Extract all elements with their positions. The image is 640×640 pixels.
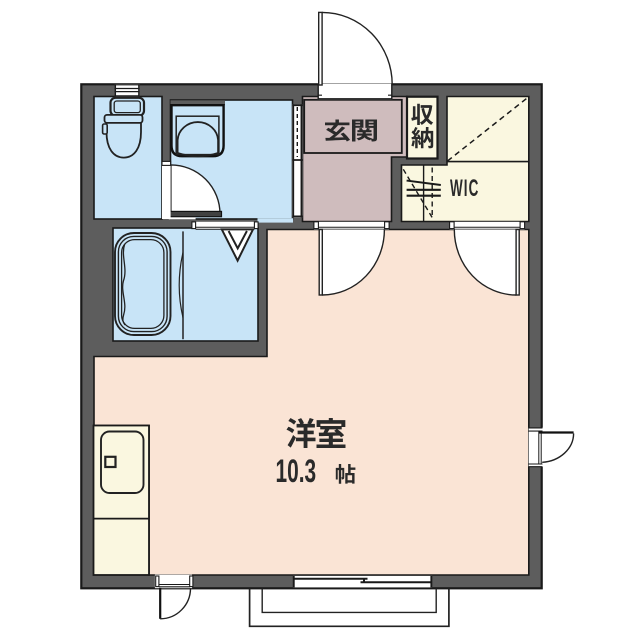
svg-text:WIC: WIC — [450, 175, 479, 202]
svg-text:10.3: 10.3 — [276, 454, 317, 490]
